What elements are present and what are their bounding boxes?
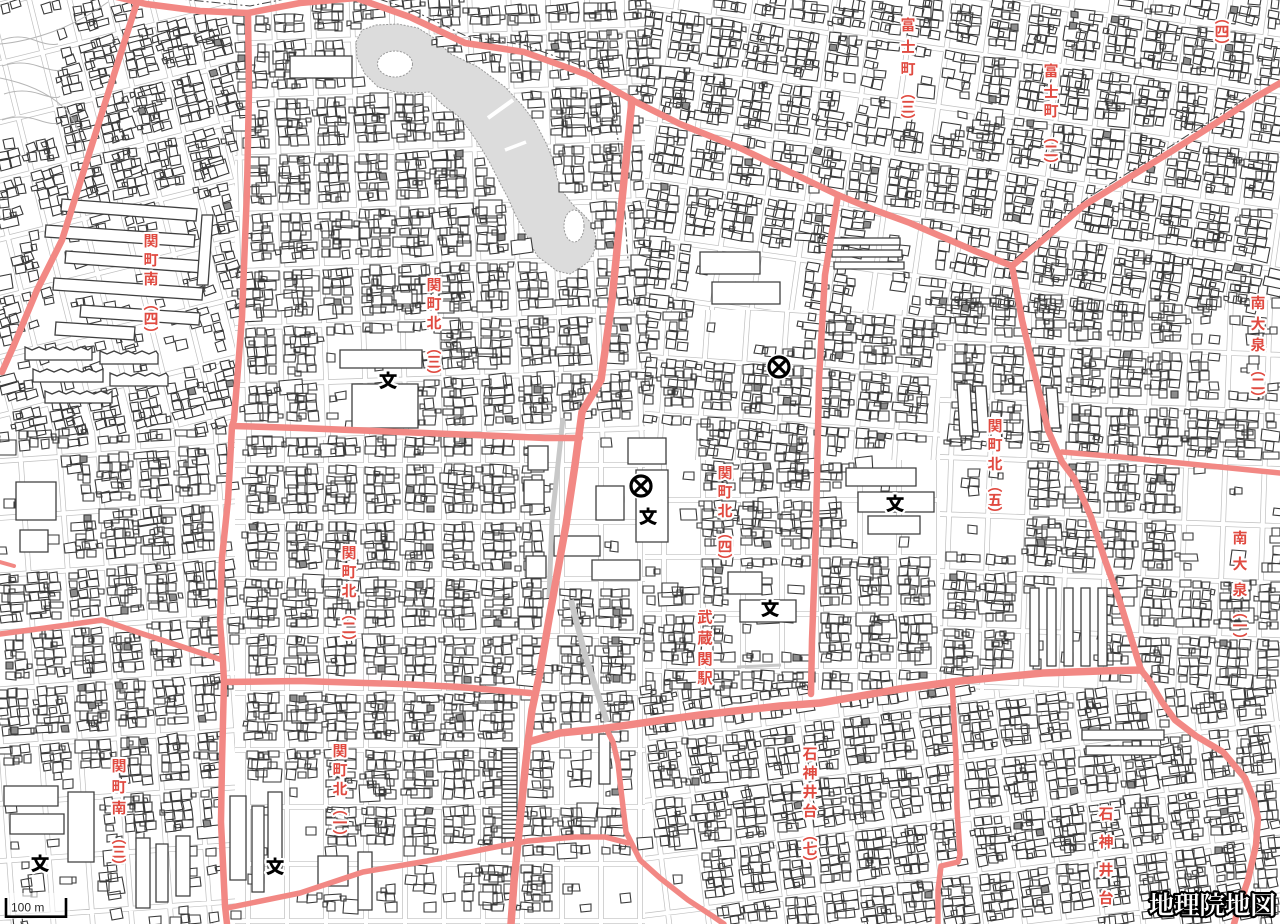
svg-text:100 m: 100 m [11, 901, 44, 915]
